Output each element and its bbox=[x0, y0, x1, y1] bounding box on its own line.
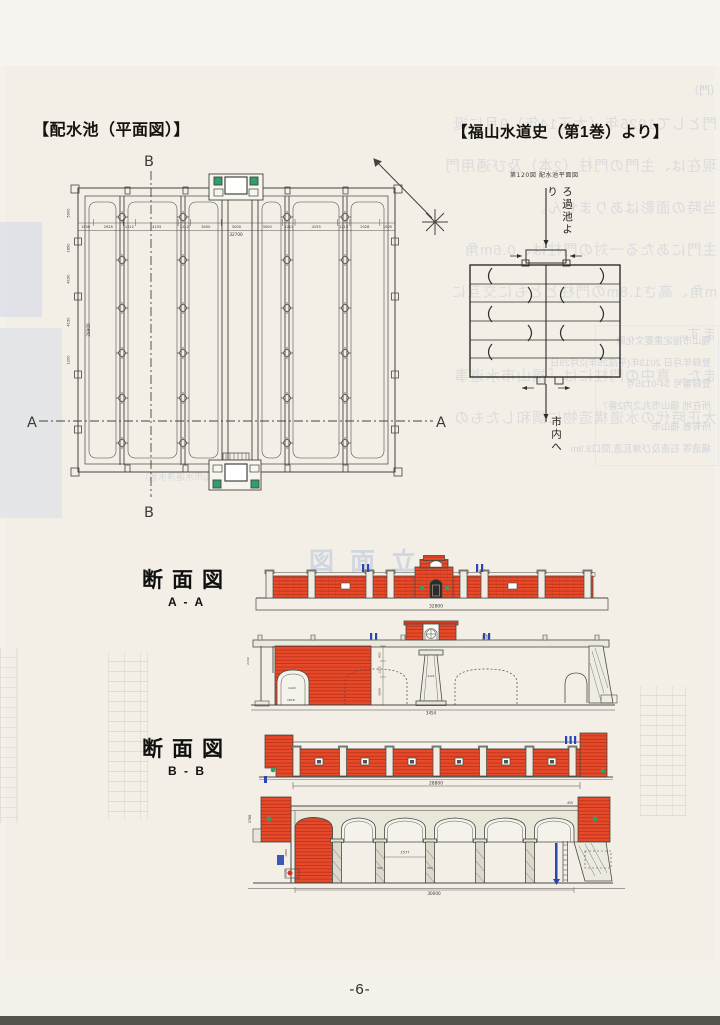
label-a-left: A bbox=[27, 415, 37, 431]
valve-tower bbox=[415, 556, 453, 599]
svg-text:32700: 32700 bbox=[229, 232, 243, 237]
svg-text:2121: 2121 bbox=[427, 674, 434, 678]
svg-text:1850: 1850 bbox=[67, 243, 71, 253]
scan-bottom-edge bbox=[0, 1016, 720, 1025]
svg-text:2121: 2121 bbox=[284, 869, 288, 877]
svg-text:3000: 3000 bbox=[201, 225, 211, 229]
svg-text:1500: 1500 bbox=[81, 225, 91, 229]
svg-text:3788: 3788 bbox=[248, 815, 252, 824]
svg-text:28800: 28800 bbox=[86, 323, 91, 337]
section-b-label: 断面図 B - B bbox=[142, 733, 232, 778]
ref-caption: 第120図 配水池平面図 bbox=[510, 171, 579, 179]
svg-text:3000: 3000 bbox=[263, 225, 273, 229]
scan-top-margin bbox=[0, 0, 720, 66]
svg-text:1500: 1500 bbox=[383, 225, 393, 229]
tower-section bbox=[404, 621, 458, 640]
svg-text:1094: 1094 bbox=[284, 849, 288, 857]
svg-text:1212: 1212 bbox=[180, 225, 189, 229]
page-number: -6- bbox=[0, 981, 720, 998]
columns bbox=[331, 839, 537, 883]
svg-text:455: 455 bbox=[567, 801, 573, 805]
svg-text:2928: 2928 bbox=[104, 225, 114, 229]
label-b-bottom: B bbox=[144, 505, 154, 521]
inlet-label: ろ過池より bbox=[545, 186, 575, 248]
right-buttress bbox=[589, 646, 613, 703]
left-brick-block bbox=[261, 797, 291, 842]
svg-text:4150: 4150 bbox=[67, 274, 71, 284]
valve-house-top bbox=[209, 174, 263, 200]
svg-text:562: 562 bbox=[377, 866, 383, 870]
svg-text:1424: 1424 bbox=[288, 686, 296, 690]
svg-text:2928: 2928 bbox=[360, 225, 370, 229]
svg-text:32800: 32800 bbox=[429, 604, 443, 610]
svg-text:1818: 1818 bbox=[287, 698, 295, 702]
svg-text:4155: 4155 bbox=[312, 225, 321, 229]
svg-text:2577: 2577 bbox=[400, 851, 409, 855]
section-a-label: 断面図 A - A bbox=[142, 564, 232, 609]
red-end-wall bbox=[295, 818, 333, 884]
arch-niche-right bbox=[565, 673, 587, 703]
aa-cross-section: 1424 1818 905 1212 3069 2121 2132 3454 bbox=[233, 613, 631, 721]
svg-text:1212: 1212 bbox=[339, 225, 348, 229]
aa-elevation: 32800 bbox=[248, 554, 618, 618]
bleed-brick-column bbox=[640, 686, 686, 816]
ref-title: 【福山水道史（第1巻）より】 bbox=[452, 120, 669, 142]
svg-text:1212: 1212 bbox=[284, 225, 293, 229]
label-b-top: B bbox=[144, 154, 154, 170]
bleed-brick-column bbox=[0, 648, 18, 823]
scanned-page: 門として1925年（大正14年）9月に誕 現在は、主門の門柱（2本）及び通用門 … bbox=[0, 0, 720, 1025]
svg-text:3000: 3000 bbox=[232, 225, 242, 229]
svg-text:4155: 4155 bbox=[152, 225, 161, 229]
bb-cross-section: 2577 562 562 1094 2121 3788 455 30000 bbox=[233, 791, 635, 906]
ladder bbox=[563, 841, 568, 882]
svg-text:28800: 28800 bbox=[429, 781, 443, 787]
svg-text:4150: 4150 bbox=[67, 317, 71, 327]
svg-text:562: 562 bbox=[427, 866, 433, 870]
plan-title: 【配水池（平面図）】 bbox=[33, 116, 190, 140]
bb-elevation: 28800 bbox=[253, 726, 621, 796]
outlet-label: 市内へ bbox=[549, 416, 564, 462]
end-block-left bbox=[265, 735, 293, 777]
svg-text:905: 905 bbox=[378, 652, 382, 658]
bleedthrough-corner: （門） bbox=[688, 82, 720, 98]
north-arrow bbox=[374, 159, 448, 235]
svg-text:30000: 30000 bbox=[427, 891, 441, 896]
svg-text:1200: 1200 bbox=[67, 355, 71, 365]
plan-drawing: 1500 2928 1212 4155 1212 3000 3000 3000 … bbox=[25, 145, 475, 530]
svg-text:5000: 5000 bbox=[67, 208, 71, 218]
svg-text:3069: 3069 bbox=[378, 688, 382, 696]
svg-text:3454: 3454 bbox=[426, 711, 437, 716]
svg-text:2132: 2132 bbox=[246, 657, 250, 665]
valve-house-bottom bbox=[209, 453, 261, 490]
svg-text:1212: 1212 bbox=[378, 666, 382, 674]
svg-text:1212: 1212 bbox=[125, 225, 134, 229]
